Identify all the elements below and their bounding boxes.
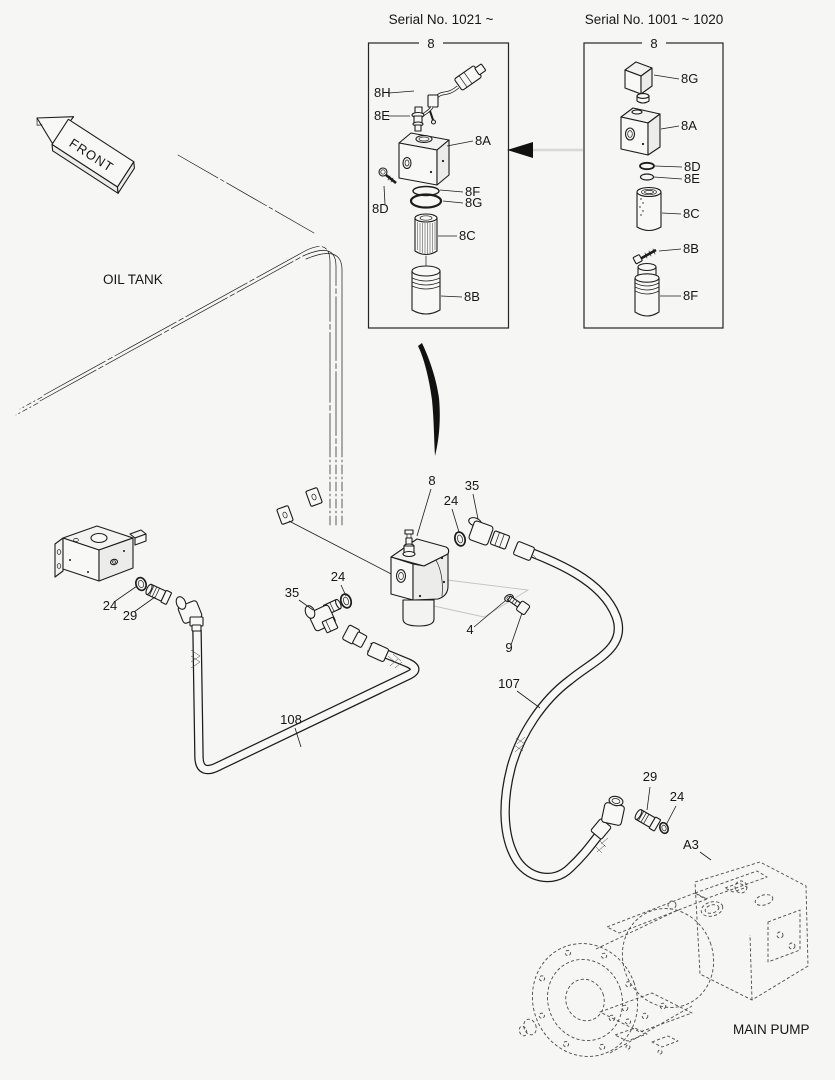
filter-case-8f xyxy=(635,264,659,317)
callout-4: 4 xyxy=(466,622,473,637)
part-label-8a-right: 8A xyxy=(681,118,697,133)
main-pump-label: MAIN PUMP xyxy=(733,1022,810,1037)
part-label-8d-left: 8D xyxy=(372,201,389,216)
parts-diagram-page: OIL TANK FRONT Serial No. 1021 ~ 8 xyxy=(0,0,835,1080)
hose-labels: 108 107 xyxy=(280,676,540,747)
callout-108: 108 xyxy=(280,712,302,727)
oring-8g xyxy=(411,195,441,208)
curved-pointer-arrow xyxy=(418,343,440,456)
hose-107-braiding xyxy=(514,548,608,853)
part-label-8b-right: 8B xyxy=(683,241,699,256)
group-label-right: 8 xyxy=(650,36,657,51)
oring-24-right xyxy=(453,531,466,547)
part-label-8a-left: 8A xyxy=(475,133,491,148)
detail-box-serial-1001-1020: Serial No. 1001 ~ 1020 8 xyxy=(584,12,723,328)
hose-107-elbow xyxy=(590,795,624,839)
filter-element-8c-right xyxy=(637,188,661,231)
filter-element-8c-left xyxy=(415,214,437,268)
sensor-8e xyxy=(412,107,424,131)
bracket-oring-24 xyxy=(134,576,148,591)
reference-arrow xyxy=(507,142,583,158)
callout-24-right: 24 xyxy=(444,493,458,508)
part-label-8e-left: 8E xyxy=(374,108,390,123)
part-label-8b-left: 8B xyxy=(464,289,480,304)
bolt-8d xyxy=(379,168,396,183)
part-label-8e-right: 8E xyxy=(684,171,700,186)
filter-case-8b xyxy=(412,266,440,314)
callout-107: 107 xyxy=(498,676,520,691)
oil-tank-label: OIL TANK xyxy=(103,272,163,287)
oring-8d xyxy=(640,163,654,169)
group-label-left: 8 xyxy=(427,36,434,51)
elbow-fitting-35-left xyxy=(303,599,342,633)
callout-35-right: 35 xyxy=(465,478,479,493)
part-label-8g-left: 8G xyxy=(465,195,482,210)
callout-9: 9 xyxy=(505,640,512,655)
bolt-8b xyxy=(633,249,656,264)
callout-24-left: 24 xyxy=(331,569,345,584)
oil-tank-lines: OIL TANK xyxy=(16,155,342,528)
diagram-canvas: OIL TANK FRONT Serial No. 1021 ~ 8 xyxy=(0,0,835,1080)
hose-108-elbow xyxy=(174,595,203,631)
bracket-assembly: 24 29 xyxy=(55,526,203,631)
callout-35-left: 35 xyxy=(285,585,299,600)
callout-29-bracket: 29 xyxy=(123,608,137,623)
valve-body-8a-right xyxy=(621,108,660,155)
serial-title-right: Serial No. 1001 ~ 1020 xyxy=(585,12,723,27)
callout-24-pump: 24 xyxy=(670,789,684,804)
front-direction-arrow: FRONT xyxy=(27,100,140,193)
pump-oring-24 xyxy=(658,821,669,834)
callout-24-bracket: 24 xyxy=(103,598,117,613)
part-label-8g-right: 8G xyxy=(681,71,698,86)
oring-8e xyxy=(641,174,654,180)
detail-box-serial-1021: Serial No. 1021 ~ 8 xyxy=(369,12,509,328)
pump-fitting-29 xyxy=(633,808,660,831)
hose-108-ferrule xyxy=(342,625,368,649)
pipe-clips xyxy=(277,487,397,577)
callout-a3: A3 xyxy=(683,837,699,852)
part-label-8c-left: 8C xyxy=(459,228,476,243)
valve-body-8a-left xyxy=(399,133,449,185)
elbow-fitting-35-right xyxy=(468,516,535,561)
bolt-9 xyxy=(506,594,530,616)
callout-29-pump: 29 xyxy=(643,769,657,784)
part-label-8f-right: 8F xyxy=(683,288,698,303)
solenoid-8g xyxy=(625,62,652,103)
part-label-8h: 8H xyxy=(374,85,391,100)
harness-8h xyxy=(421,61,488,124)
filter-valve-block xyxy=(391,530,449,626)
serial-title-left: Serial No. 1021 ~ xyxy=(389,12,494,27)
pump-port-fittings: 29 24 A3 xyxy=(590,769,711,860)
part-label-8c-right: 8C xyxy=(683,206,700,221)
main-pump-phantom: MAIN PUMP xyxy=(517,862,810,1071)
callout-8: 8 xyxy=(428,473,435,488)
